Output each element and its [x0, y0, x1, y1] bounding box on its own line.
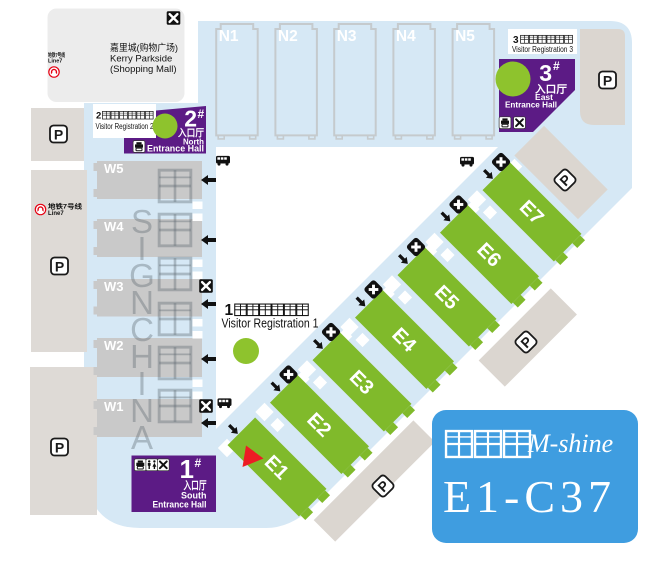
svg-text:N5: N5: [455, 28, 475, 45]
svg-text:Visitor Registration 1: Visitor Registration 1: [222, 317, 319, 331]
svg-text:Entrance Hall: Entrance Hall: [153, 500, 207, 510]
svg-text:W4: W4: [104, 219, 124, 234]
svg-text:Entrance Hall: Entrance Hall: [505, 100, 557, 110]
svg-text:N4: N4: [396, 28, 416, 45]
svg-text:Kerry Parkside: Kerry Parkside: [110, 54, 172, 65]
svg-text:N3: N3: [337, 28, 357, 45]
svg-text:M-shine: M-shine: [527, 429, 613, 458]
svg-text:A: A: [131, 419, 153, 456]
svg-text:(Shopping Mall): (Shopping Mall): [110, 64, 177, 75]
svg-text:#: #: [198, 107, 205, 121]
svg-text:N1: N1: [219, 28, 239, 45]
svg-text:#: #: [195, 456, 202, 470]
svg-text:3: 3: [539, 60, 552, 86]
svg-text:地铁7号线: 地铁7号线: [48, 202, 83, 211]
svg-text:Line7: Line7: [48, 59, 62, 65]
svg-text:N2: N2: [278, 28, 298, 45]
svg-text:W2: W2: [104, 338, 124, 353]
svg-text:Line7: Line7: [48, 211, 64, 217]
svg-text:W5: W5: [104, 161, 124, 176]
svg-text:W3: W3: [104, 279, 124, 294]
svg-text:Visitor Registration 2: Visitor Registration 2: [96, 122, 154, 131]
svg-text:E1-C37: E1-C37: [443, 471, 616, 522]
svg-text:Entrance Hall: Entrance Hall: [147, 144, 204, 155]
svg-text:Visitor Registration 3: Visitor Registration 3: [512, 45, 573, 54]
svg-text:嘉里城(购物广场): 嘉里城(购物广场): [110, 42, 178, 54]
svg-text:W1: W1: [104, 399, 124, 414]
svg-text:2: 2: [96, 111, 101, 122]
svg-text:#: #: [553, 59, 560, 73]
